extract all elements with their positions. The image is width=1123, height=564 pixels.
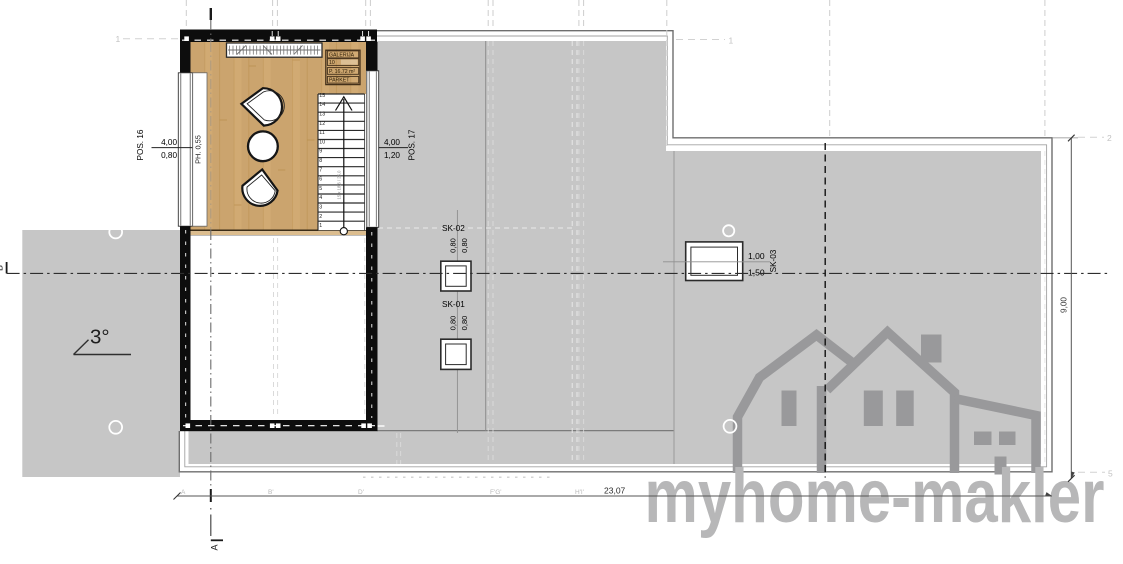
- svg-text:1: 1: [319, 223, 322, 229]
- svg-text:1,00: 1,00: [748, 251, 765, 261]
- svg-text:1,20: 1,20: [384, 151, 400, 160]
- svg-text:SK-03: SK-03: [769, 249, 778, 272]
- svg-text:SK-02: SK-02: [442, 224, 465, 233]
- svg-text:13: 13: [319, 112, 325, 118]
- svg-text:15: 15: [319, 93, 325, 99]
- svg-text:P. 16.72 m²: P. 16.72 m²: [329, 69, 355, 75]
- svg-text:5: 5: [319, 186, 322, 192]
- svg-text:POS. 17: POS. 17: [408, 129, 417, 160]
- svg-text:6: 6: [319, 177, 322, 183]
- svg-text:11: 11: [319, 130, 325, 136]
- svg-text:23,07: 23,07: [604, 486, 626, 496]
- svg-text:14: 14: [319, 102, 325, 108]
- svg-text:10: 10: [319, 139, 325, 145]
- svg-text:0,80: 0,80: [448, 238, 457, 253]
- svg-text:A: A: [181, 489, 186, 496]
- svg-text:2: 2: [1107, 133, 1112, 143]
- svg-text:12: 12: [319, 121, 325, 127]
- svg-text:4: 4: [319, 195, 322, 201]
- svg-text:1: 1: [729, 36, 734, 46]
- svg-text:SK-01: SK-01: [442, 300, 465, 309]
- svg-text:9: 9: [319, 149, 322, 155]
- svg-text:POS. 16: POS. 16: [136, 129, 145, 160]
- svg-text:PARKET: PARKET: [329, 78, 350, 84]
- svg-text:15 x 18,6 / 25,0: 15 x 18,6 / 25,0: [337, 170, 342, 200]
- svg-text:D': D': [358, 489, 364, 496]
- svg-text:8: 8: [319, 158, 322, 164]
- svg-text:0,80: 0,80: [460, 238, 469, 253]
- svg-text:3: 3: [319, 205, 322, 211]
- svg-text:4,00: 4,00: [384, 138, 400, 147]
- svg-text:B: B: [0, 265, 5, 271]
- svg-text:GALERIJA: GALERIJA: [329, 52, 355, 58]
- svg-text:2: 2: [319, 214, 322, 220]
- svg-text:H'I': H'I': [575, 489, 584, 496]
- svg-text:1: 1: [116, 34, 121, 44]
- svg-text:10: 10: [329, 60, 335, 66]
- svg-text:5: 5: [1108, 469, 1113, 479]
- svg-text:A: A: [210, 544, 220, 550]
- svg-text:B': B': [268, 489, 274, 496]
- svg-text:1,50: 1,50: [748, 268, 765, 278]
- svg-text:3°: 3°: [90, 326, 110, 349]
- svg-text:0,80: 0,80: [448, 316, 457, 331]
- svg-text:PH. 0,55: PH. 0,55: [193, 135, 202, 164]
- svg-text:F'G': F'G': [490, 489, 502, 496]
- svg-text:0,80: 0,80: [460, 316, 469, 331]
- svg-text:4,00: 4,00: [161, 138, 177, 147]
- svg-text:9,00: 9,00: [1060, 297, 1069, 313]
- svg-text:7: 7: [319, 167, 322, 173]
- svg-text:0,80: 0,80: [161, 151, 177, 160]
